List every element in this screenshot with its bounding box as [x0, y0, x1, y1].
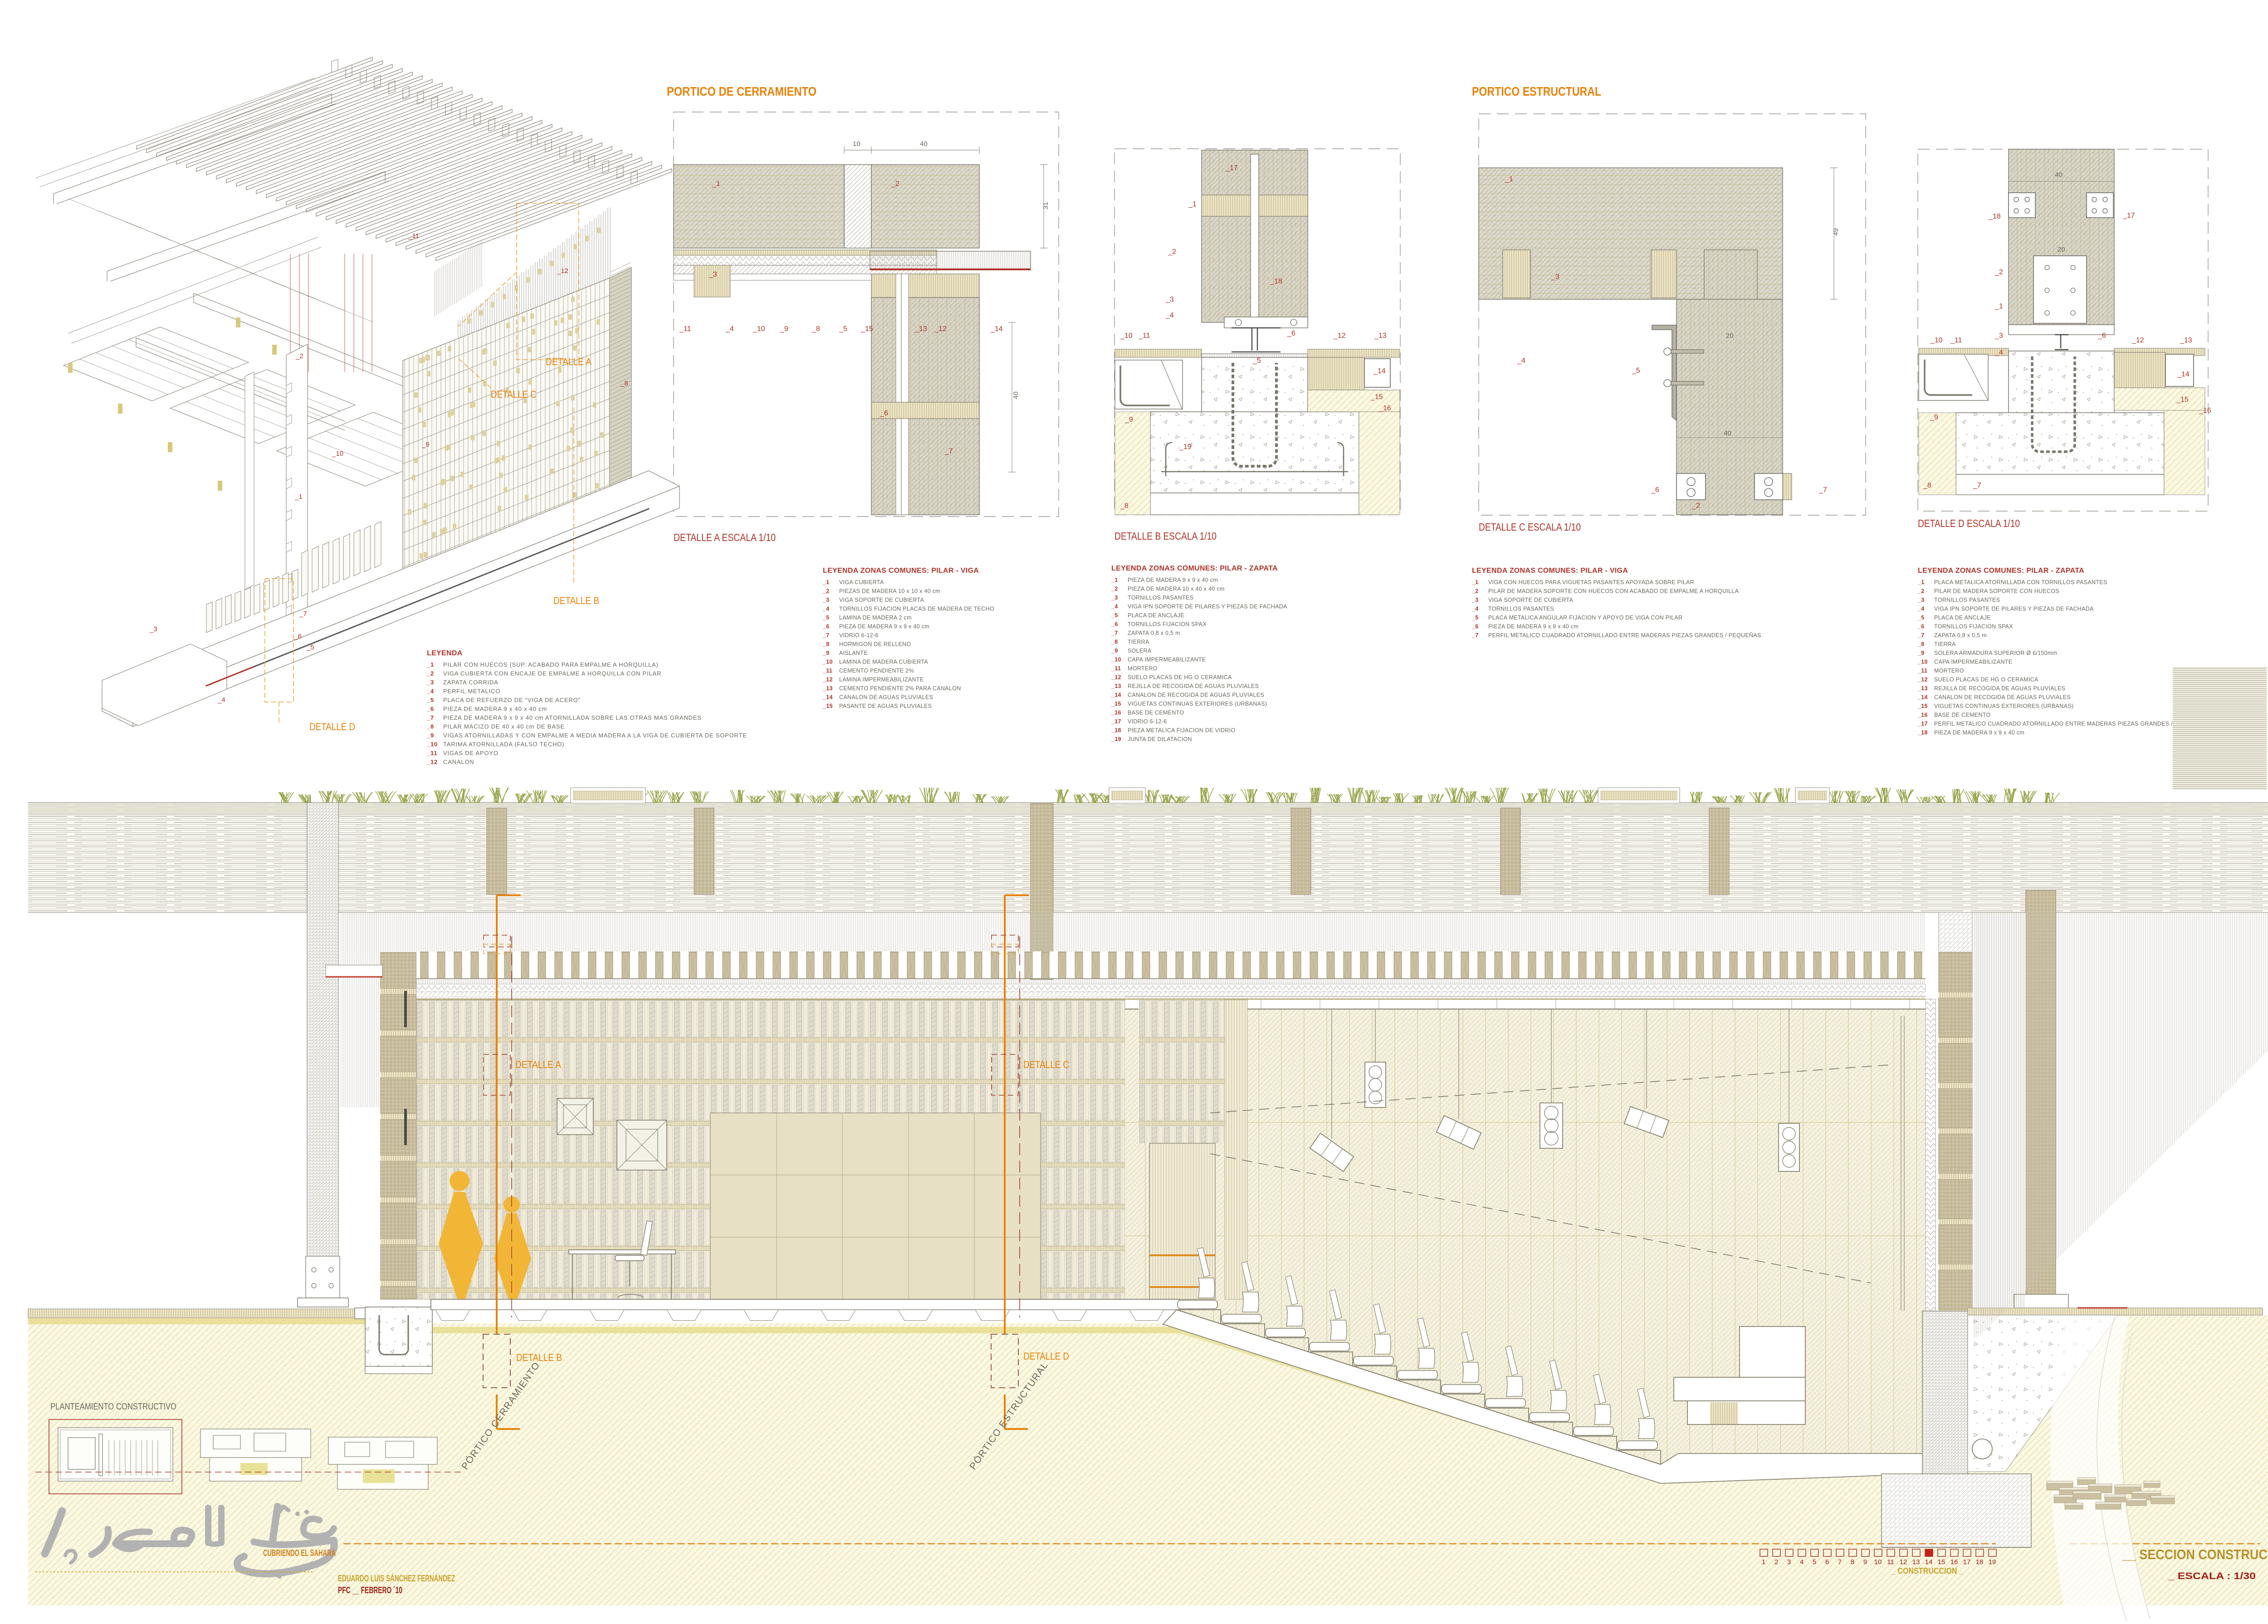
svg-text:2: 2 [1774, 1558, 1778, 1566]
svg-text:_10: _10 [1120, 332, 1133, 340]
svg-text:_5: _5 [839, 325, 847, 333]
svg-text:DETALLE B: DETALLE B [553, 595, 599, 606]
svg-text:LEYENDA ZONAS COMUNES: PILAR -: LEYENDA ZONAS COMUNES: PILAR - VIGA [823, 567, 979, 575]
svg-text:_13REJILLA DE RECOGIDA DE AGUA: _13REJILLA DE RECOGIDA DE AGUAS PLUVIALE… [1917, 685, 2065, 692]
svg-text:_12SUELO PLACAS DE HG O CERAMI: _12SUELO PLACAS DE HG O CERAMICA [1111, 674, 1232, 681]
svg-text:_8: _8 [1120, 502, 1129, 510]
svg-text:_12: _12 [557, 267, 568, 275]
svg-text:_ CONSTRUCCION _: _ CONSTRUCCION _ [1891, 1566, 1964, 1575]
svg-text:_4VIGA IPN SOPORTE DE PILARES: _4VIGA IPN SOPORTE DE PILARES Y PIEZAS D… [1111, 604, 1287, 610]
svg-text:_5PLACA DE REFUERZO DE “VIGA D: _5PLACA DE REFUERZO DE “VIGA DE ACERO” [426, 697, 581, 703]
svg-text:_12: _12 [934, 325, 947, 333]
svg-text:_4: _4 [1994, 349, 2003, 356]
svg-text:LEYENDA ZONAS COMUNES: PILAR -: LEYENDA ZONAS COMUNES: PILAR - VIGA [1472, 567, 1628, 575]
svg-text:_14: _14 [1373, 367, 1386, 375]
svg-text:31: 31 [1042, 202, 1050, 210]
svg-text:_12SUELO PLACAS DE HG O CERAMI: _12SUELO PLACAS DE HG O CERAMICA [1917, 677, 2038, 683]
svg-text:3: 3 [1787, 1558, 1791, 1566]
svg-text:_10TARIMA ATORNILLADA (FALSO T: _10TARIMA ATORNILLADA (FALSO TECHO) [426, 741, 564, 748]
svg-text:_3: _3 [1165, 296, 1174, 303]
svg-text:DETALLE C: DETALLE C [1023, 1059, 1069, 1070]
svg-text:18: 18 [1976, 1558, 1984, 1566]
svg-text:_6: _6 [1287, 330, 1295, 337]
svg-text:_ ESCALA : 1/30: _ ESCALA : 1/30 [2168, 1571, 2256, 1581]
svg-text:14: 14 [1925, 1558, 1933, 1566]
svg-text:19: 19 [1989, 1558, 1996, 1566]
svg-text:_13: _13 [2180, 337, 2192, 344]
svg-text:_7: _7 [1818, 486, 1827, 494]
svg-text:_10: _10 [332, 450, 343, 458]
svg-text:_3: _3 [1994, 332, 2003, 340]
svg-text:_1: _1 [294, 493, 303, 501]
svg-text:_2: _2 [1168, 248, 1176, 256]
svg-text:_6: _6 [2097, 332, 2106, 340]
svg-text:_7PERFIL METALICO CUADRADO ATO: _7PERFIL METALICO CUADRADO ATORNILLADO E… [1471, 632, 1761, 639]
svg-text:12: 12 [1900, 1558, 1907, 1566]
svg-text:17: 17 [1963, 1558, 1971, 1566]
svg-text:_1PILAR CON HUECOS (SUP. ACABA: _1PILAR CON HUECOS (SUP. ACABADO PARA EM… [426, 661, 659, 668]
svg-text:_13: _13 [1374, 332, 1387, 340]
svg-text:_1: _1 [712, 180, 720, 188]
svg-text:_2: _2 [295, 352, 303, 360]
svg-text:_13CEMENTO PENDIENTE 2% PARA C: _13CEMENTO PENDIENTE 2% PARA CANALON [822, 685, 961, 692]
svg-text:DETALLE A ESCALA 1/10: DETALLE A ESCALA 1/10 [674, 532, 776, 543]
svg-text:_9SOLERA: _9SOLERA [1111, 648, 1152, 654]
svg-text:40: 40 [920, 140, 928, 148]
svg-text:49: 49 [1832, 228, 1840, 236]
svg-text:_6: _6 [880, 410, 888, 417]
svg-text:DETALLE A: DETALLE A [515, 1059, 561, 1070]
svg-text:__ SECCION CONSTRUCTIVA: __ SECCION CONSTRUCTIVA [2122, 1546, 2268, 1562]
svg-text:_18PIEZA METALICA FIJACION DE: _18PIEZA METALICA FIJACION DE VIDRIO [1111, 727, 1236, 734]
svg-text:5: 5 [1813, 1558, 1816, 1566]
svg-text:40: 40 [2055, 171, 2063, 179]
svg-text:_9: _9 [1124, 416, 1133, 424]
svg-text:_1: _1 [1994, 302, 2003, 310]
svg-text:_9AISLANTE: _9AISLANTE [822, 650, 868, 656]
svg-text:_11MORTERO: _11MORTERO [1111, 665, 1158, 672]
svg-text:20: 20 [2058, 246, 2065, 254]
svg-text:_3: _3 [149, 625, 157, 633]
svg-text:13: 13 [1912, 1558, 1920, 1566]
svg-text:_2PIEZA DE MADERA 10 x 40 x 40: _2PIEZA DE MADERA 10 x 40 x 40 cm [1111, 586, 1225, 592]
svg-text:_9: _9 [421, 441, 430, 449]
svg-text:LEYENDA ZONAS COMUNES: PILAR -: LEYENDA ZONAS COMUNES: PILAR - ZAPATA [1918, 567, 2084, 575]
svg-text:_5: _5 [306, 644, 314, 651]
svg-text:40: 40 [1012, 391, 1020, 399]
svg-text:10: 10 [1874, 1558, 1882, 1566]
svg-text:_1VIGA CON HUECOS PARA VIGUET: _1VIGA CON HUECOS PARA VIGUETAS PASANTES… [1471, 579, 1694, 585]
svg-text:_13: _13 [914, 325, 927, 333]
svg-text:_17PERFIL METALICO CUADRADO AT: _17PERFIL METALICO CUADRADO ATORNILLADO … [1917, 721, 2207, 727]
svg-text:_8: _8 [620, 380, 628, 387]
svg-text:10: 10 [853, 140, 860, 148]
svg-text:_2: _2 [891, 180, 899, 188]
svg-text:1: 1 [1762, 1558, 1765, 1566]
svg-text:9: 9 [1863, 1558, 1867, 1566]
svg-text:_4: _4 [1517, 357, 1525, 365]
svg-text:_8PILAR MACIZO DE 40 x 40 cm D: _8PILAR MACIZO DE 40 x 40 cm DE BASE [426, 723, 565, 730]
svg-text:_2PILAR DE MADERA SOPORTE CON: _2PILAR DE MADERA SOPORTE CON HUECOS CON… [1471, 588, 1739, 595]
svg-text:CUBRIENDO EL SAHARA: CUBRIENDO EL SAHARA [263, 1548, 336, 1558]
svg-text:_6: _6 [293, 633, 302, 640]
svg-text:_2: _2 [1691, 502, 1700, 510]
svg-text:_17: _17 [1225, 164, 1238, 172]
svg-text:_8: _8 [811, 325, 820, 333]
svg-text:_10: _10 [753, 325, 765, 333]
svg-text:_15: _15 [2176, 396, 2189, 404]
svg-text:_12: _12 [1333, 332, 1346, 340]
svg-text:_6PIEZA DE MADERA 9 x 40 x 40: _6PIEZA DE MADERA 9 x 40 x 40 cm [426, 706, 547, 712]
svg-text:40: 40 [1724, 429, 1731, 437]
svg-text:_19: _19 [1179, 443, 1192, 451]
svg-text:_15PASANTE DE AGUAS PLUVIALES: _15PASANTE DE AGUAS PLUVIALES [822, 703, 932, 709]
svg-text:DETALLE D: DETALLE D [1023, 1351, 1069, 1362]
svg-text:_3: _3 [709, 271, 717, 278]
svg-text:_9VIGAS ATORNILLADAS Y CON EMP: _9VIGAS ATORNILLADAS Y CON EMPALME A MED… [426, 732, 747, 739]
svg-text:DETALLE C ESCALA 1/10: DETALLE C ESCALA 1/10 [1479, 521, 1581, 533]
svg-text:_2: _2 [1994, 268, 2003, 276]
svg-text:DETALLE D: DETALLE D [309, 721, 355, 732]
svg-text:EDUARDO LUIS SÁNCHEZ FERNÁNDEZ: EDUARDO LUIS SÁNCHEZ FERNÁNDEZ [338, 1573, 455, 1584]
svg-text:PLANTEAMIENTO CONSTRUCTIVO: PLANTEAMIENTO CONSTRUCTIVO [50, 1402, 176, 1412]
svg-text:_7: _7 [299, 610, 307, 618]
svg-text:_12: _12 [2131, 337, 2144, 344]
svg-text:_4: _4 [1165, 312, 1174, 319]
svg-text:_7PIEZA DE MADERA 9 x 9 x 40 c: _7PIEZA DE MADERA 9 x 9 x 40 cm ATORNILL… [426, 714, 702, 721]
svg-text:_8TIERRA: _8TIERRA [1917, 641, 1956, 648]
svg-text:_7: _7 [1973, 482, 1981, 489]
svg-text:_11: _11 [679, 325, 691, 333]
svg-text:DETALLE B ESCALA 1/10: DETALLE B ESCALA 1/10 [1114, 530, 1217, 542]
svg-text:_11: _11 [1138, 332, 1150, 340]
svg-text:_4: _4 [217, 696, 225, 704]
svg-text:7: 7 [1838, 1558, 1842, 1566]
svg-text:_8TIERRA: _8TIERRA [1111, 639, 1149, 645]
svg-text:_1: _1 [1505, 176, 1513, 183]
svg-text:_3: _3 [1551, 273, 1559, 281]
svg-text:PORTICO ESTRUCTURAL: PORTICO ESTRUCTURAL [1472, 84, 1601, 98]
svg-text:_8: _8 [1923, 482, 1931, 489]
svg-text:_16: _16 [1378, 405, 1391, 412]
svg-text:6: 6 [1825, 1558, 1829, 1566]
svg-text:15: 15 [1938, 1558, 1945, 1566]
svg-text:_14CANALON DE AGUAS PLUVIALES: _14CANALON DE AGUAS PLUVIALES [822, 694, 933, 701]
svg-text:16: 16 [1950, 1558, 1958, 1566]
svg-text:_17: _17 [2122, 212, 2135, 219]
svg-text:_15: _15 [860, 325, 873, 333]
svg-text:_2PIEZAS DE MADERA 10 x 10 x 4: _2PIEZAS DE MADERA 10 x 10 x 40 cm [822, 588, 940, 595]
svg-text:_1: _1 [1188, 200, 1197, 208]
svg-text:20: 20 [1726, 332, 1734, 340]
svg-text:_9: _9 [780, 325, 788, 333]
svg-text:_5: _5 [1252, 357, 1261, 365]
svg-text:_12CANALON: _12CANALON [426, 759, 474, 766]
svg-text:_11VIGAS DE APOYO: _11VIGAS DE APOYO [426, 750, 499, 756]
svg-text:_7: _7 [944, 448, 953, 455]
svg-text:_14CANALON DE RECOGIDA DE AGUA: _14CANALON DE RECOGIDA DE AGUAS PLUVIALE… [1111, 692, 1264, 698]
svg-text:_9: _9 [1930, 414, 1938, 421]
svg-text:8: 8 [1851, 1558, 1854, 1566]
svg-text:_2VIGA CUBIERTA CON ENCAJE DE: _2VIGA CUBIERTA CON ENCAJE DE EMPALME A … [426, 670, 661, 677]
svg-text:_6: _6 [1651, 486, 1659, 494]
svg-text:_11MORTERO: _11MORTERO [1917, 668, 1964, 674]
svg-text:_5PLACA METALICA ANGULAR FIJAC: _5PLACA METALICA ANGULAR FIJACION Y APOY… [1471, 614, 1682, 621]
svg-text:_9SOLERA ARMADURA SUPERIOR Ø 6: _9SOLERA ARMADURA SUPERIOR Ø 6/150mm [1917, 650, 2057, 656]
svg-text:_15: _15 [1370, 393, 1383, 401]
svg-text:_4TORNILLOS FIJACION PLACAS DE: _4TORNILLOS FIJACION PLACAS DE MADERA DE… [822, 606, 994, 612]
svg-text:_2PILAR DE MADERA SOPORTE CON: _2PILAR DE MADERA SOPORTE CON HUECOS [1917, 588, 2059, 595]
svg-text:DETALLE A: DETALLE A [546, 356, 591, 367]
svg-text:_4: _4 [725, 325, 734, 333]
svg-text:_11: _11 [408, 232, 419, 240]
svg-text:DETALLE D ESCALA 1/10: DETALLE D ESCALA 1/10 [1918, 517, 2020, 529]
svg-text:_15VIGUETAS CONTINUAS EXTERIOR: _15VIGUETAS CONTINUAS EXTERIORES (URBANA… [1917, 703, 2073, 709]
svg-text:_11: _11 [1950, 337, 1962, 344]
svg-text:11: 11 [1887, 1558, 1894, 1566]
svg-text:_18: _18 [1270, 278, 1282, 285]
svg-text:_16: _16 [2199, 407, 2211, 415]
svg-text:LEYENDA ZONAS COMUNES: PILAR -: LEYENDA ZONAS COMUNES: PILAR - ZAPATA [1111, 565, 1278, 572]
svg-text:_14CANALON DE RECOGIDA DE AGUA: _14CANALON DE RECOGIDA DE AGUAS PLUVIALE… [1917, 694, 2071, 701]
svg-text:_15VIGUETAS CONTINUAS EXTERIOR: _15VIGUETAS CONTINUAS EXTERIORES (URBANA… [1111, 701, 1267, 707]
svg-text:_13REJILLA DE RECOGIDA DE AGUA: _13REJILLA DE RECOGIDA DE AGUAS PLUVIALE… [1111, 683, 1259, 689]
svg-text:PFC __ FEBRERO ´10: PFC __ FEBRERO ´10 [338, 1585, 402, 1595]
svg-text:PORTICO DE CERRAMIENTO: PORTICO DE CERRAMIENTO [667, 84, 816, 98]
svg-text:_1PLACA METALICA ATORNILLADA C: _1PLACA METALICA ATORNILLADA CON TORNILL… [1917, 579, 2107, 585]
svg-text:_18: _18 [1988, 213, 2001, 220]
svg-text:_14: _14 [2177, 371, 2190, 378]
svg-text:LEYENDA: LEYENDA [427, 649, 463, 657]
svg-text:_10: _10 [1930, 337, 1943, 344]
svg-text:DETALLE C: DETALLE C [491, 389, 537, 400]
svg-text:_17VIDRIO 6-12-6: _17VIDRIO 6-12-6 [1111, 718, 1167, 725]
svg-text:_5: _5 [1632, 367, 1640, 375]
svg-text:_14: _14 [990, 325, 1003, 333]
svg-text:4: 4 [1800, 1558, 1804, 1566]
svg-text:DETALLE B: DETALLE B [516, 1352, 562, 1363]
svg-text:_4VIGA IPN SOPORTE DE PILARES: _4VIGA IPN SOPORTE DE PILARES Y PIEZAS D… [1917, 606, 2094, 612]
